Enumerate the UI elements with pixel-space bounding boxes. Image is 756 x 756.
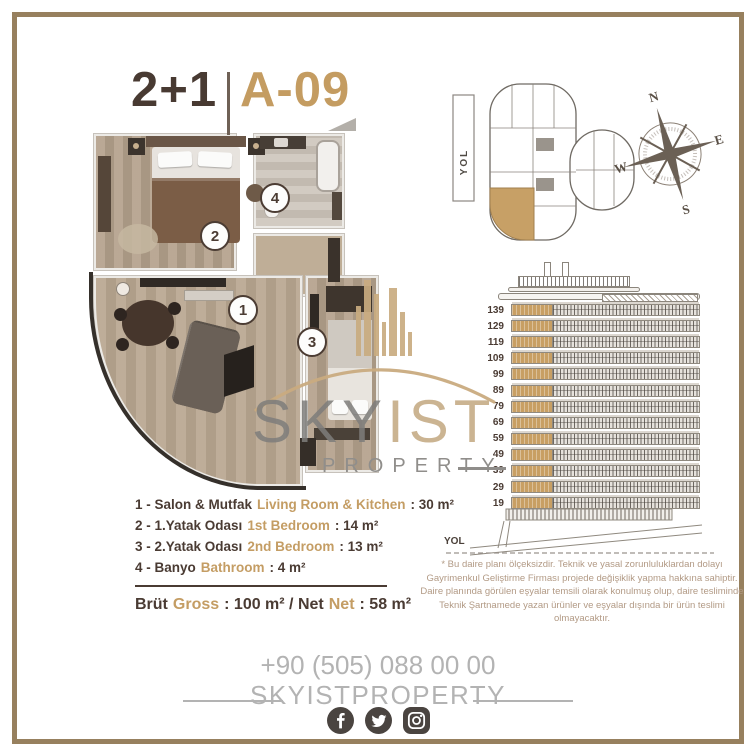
unit-highlight-band: [512, 402, 553, 412]
room-count-title: 2+1: [131, 66, 217, 115]
room-area: : 30 m²: [411, 497, 455, 512]
room-area: : 14 m²: [335, 518, 379, 533]
disclaimer-line: * Bu daire planı ölçeksizdir. Teknik ve …: [415, 558, 749, 572]
floor-band: [511, 449, 700, 461]
entrance-door: [300, 438, 316, 466]
unit-highlight-band: [512, 450, 553, 460]
room-legend: 1 - Salon & MutfakLiving Room & Kitchen:…: [135, 497, 435, 614]
floor-band: [511, 304, 700, 316]
elevation-base: YOL: [440, 508, 720, 556]
window-band: [553, 418, 699, 428]
unit-highlight-band: [512, 482, 553, 492]
shoe-cabinet: [328, 238, 340, 282]
roof-hatch: [602, 294, 698, 302]
window-band: [553, 305, 699, 315]
floor-number: 69: [480, 417, 504, 428]
floor-number: 89: [480, 385, 504, 396]
wardrobe: [98, 156, 111, 232]
floor-row: 59: [440, 431, 700, 447]
window-band: [553, 386, 699, 396]
floor-number: 129: [480, 321, 504, 332]
room-marker-bathroom: 4: [260, 183, 290, 213]
legend-divider: [135, 585, 387, 587]
floor-band: [511, 417, 700, 429]
unit-highlight-band: [512, 321, 553, 331]
floor-number: 59: [480, 433, 504, 444]
floor-band: [511, 368, 700, 380]
window-band: [553, 321, 699, 331]
dining-chair: [168, 302, 181, 315]
gross-label-tr: Brüt: [135, 596, 168, 613]
compass-north-label: N: [647, 88, 661, 105]
floor-number: 99: [480, 369, 504, 380]
floor-number: 29: [480, 482, 504, 493]
road-box: [453, 95, 474, 201]
flyer-canvas: 2+1 A-09: [0, 0, 756, 756]
room-area: : 4 m²: [270, 560, 306, 575]
floor-lamp: [116, 282, 130, 296]
console-table: [184, 290, 234, 301]
floor-band: [511, 352, 700, 364]
lamp-icon: [133, 143, 139, 149]
floor-number: 79: [480, 401, 504, 412]
window-band: [553, 434, 699, 444]
room-name-tr: 3 - 2.Yatak Odası: [135, 539, 242, 554]
pillow: [158, 151, 193, 168]
window-band: [553, 369, 699, 379]
room-name-tr: 1 - Salon & Mutfak: [135, 497, 252, 512]
floor-band: [511, 320, 700, 332]
tv-unit: [140, 278, 226, 287]
floor-row: 69: [440, 415, 700, 431]
unit-highlight-band: [512, 434, 553, 444]
elevator-core: [536, 178, 554, 191]
window-band: [553, 466, 699, 476]
gross-value: : 100 m² / Net: [224, 596, 324, 613]
sink: [274, 138, 288, 147]
building-elevation: 139 129 119 109 99 89 79 69 59 49 39 29 …: [440, 256, 720, 556]
floor-row: 119: [440, 334, 700, 350]
pillow: [352, 400, 368, 414]
net-value: : 58 m²: [360, 596, 412, 613]
unit-highlight-band: [512, 386, 553, 396]
bed-headboard: [146, 136, 246, 147]
compass-west-label: W: [614, 159, 629, 177]
dresser: [314, 428, 370, 440]
wardrobe: [326, 286, 372, 312]
floor-row: 89: [440, 382, 700, 398]
window-band: [553, 482, 699, 492]
unit-highlight-band: [512, 369, 553, 379]
twitter-icon[interactable]: [365, 707, 392, 734]
facebook-icon[interactable]: [327, 707, 354, 734]
floor-row: 109: [440, 350, 700, 366]
window-band: [553, 402, 699, 412]
disclaimer-line: Teknik Şartnamede yazan ürünler ve eşyal…: [415, 599, 749, 626]
social-icons: [0, 707, 756, 734]
floor-row: 99: [440, 366, 700, 382]
roof-penthouse: [518, 276, 630, 287]
room-name-en: 1st Bedroom: [247, 518, 330, 533]
window-band: [553, 450, 699, 460]
road-label: YOL: [444, 536, 465, 547]
unit-number-title: A-09: [240, 66, 350, 115]
dining-chair: [116, 338, 129, 351]
room-name-en: 2nd Bedroom: [247, 539, 334, 554]
room-name-tr: 2 - 1.Yatak Odası: [135, 518, 242, 533]
floor-band: [511, 385, 700, 397]
room-marker-bedroom2: 3: [297, 327, 327, 357]
floor-number: 139: [480, 305, 504, 316]
title-divider: [227, 72, 230, 135]
legend-item: 4 - BanyoBathroom: 4 m²: [135, 560, 435, 575]
floor-band: [511, 336, 700, 348]
floor-number: 109: [480, 353, 504, 364]
net-label-en: Net: [329, 596, 355, 613]
gross-label-en: Gross: [173, 596, 219, 613]
legend-item: 2 - 1.Yatak Odası1st Bedroom: 14 m²: [135, 518, 435, 533]
floor-row: 139: [440, 302, 700, 318]
room-marker-living: 1: [228, 295, 258, 325]
room-name-tr: 4 - Banyo: [135, 560, 196, 575]
room-name-en: Living Room & Kitchen: [257, 497, 406, 512]
legend-item: 3 - 2.Yatak Odası2nd Bedroom: 13 m²: [135, 539, 435, 554]
floor-band: [511, 433, 700, 445]
floor-row: 129: [440, 318, 700, 334]
window-band: [553, 337, 699, 347]
window-band: [553, 498, 699, 508]
compass-rose: N E S W: [614, 88, 726, 220]
floor-number: 39: [480, 465, 504, 476]
podium-band: [506, 509, 672, 520]
room-name-en: Bathroom: [201, 560, 265, 575]
legend-item: 1 - Salon & MutfakLiving Room & Kitchen:…: [135, 497, 435, 512]
compass-south-label: S: [680, 201, 691, 217]
floor-band: [511, 401, 700, 413]
disclaimer-line: Gayrimenkul Geliştirme Firması projede d…: [415, 572, 749, 586]
dining-chair: [166, 336, 179, 349]
floor-row: 79: [440, 399, 700, 415]
apartment-floor-plan: 1 2 3 4: [88, 128, 380, 492]
room-marker-bedroom1: 2: [200, 221, 230, 251]
unit-highlight-band: [512, 498, 553, 508]
highlighted-unit-a09: [490, 188, 534, 240]
floor-number: 119: [480, 337, 504, 348]
dining-chair: [114, 308, 127, 321]
roof-slab: [508, 287, 640, 292]
floor-band: [511, 481, 700, 493]
floor-key-plan: YOL: [448, 80, 640, 250]
phone-number: +90 (505) 088 00 00: [0, 650, 756, 681]
bathtub: [316, 140, 340, 192]
floor-row: 39: [440, 463, 700, 479]
floor-number: 49: [480, 449, 504, 460]
unit-highlight-band: [512, 418, 553, 428]
disclaimer-line: Daire planında görülen eşyalar temsili o…: [415, 585, 749, 599]
elevation-floors: 139 129 119 109 99 89 79 69 59 49 39 29 …: [440, 302, 720, 511]
room-area: : 13 m²: [339, 539, 383, 554]
unit-highlight-band: [512, 337, 553, 347]
area-totals: BrütGross: 100 m² / NetNet: 58 m²: [135, 596, 435, 614]
rug: [118, 224, 158, 254]
instagram-icon[interactable]: [403, 707, 430, 734]
floor-band: [511, 465, 700, 477]
pillow: [332, 400, 348, 414]
disclaimer: * Bu daire planı ölçeksizdir. Teknik ve …: [415, 558, 749, 626]
road-label: YOL: [459, 149, 470, 176]
unit-highlight-band: [512, 353, 553, 363]
unit-highlight-band: [512, 305, 553, 315]
pillow: [198, 151, 233, 168]
floor-row: 49: [440, 447, 700, 463]
window-band: [553, 353, 699, 363]
lamp-icon: [253, 143, 259, 149]
floor-row: 29: [440, 479, 700, 495]
elevator-core: [536, 138, 554, 151]
bed-blanket: [328, 320, 372, 368]
unit-highlight-band: [512, 466, 553, 476]
compass-east-label: E: [713, 131, 725, 148]
shower: [332, 192, 342, 220]
